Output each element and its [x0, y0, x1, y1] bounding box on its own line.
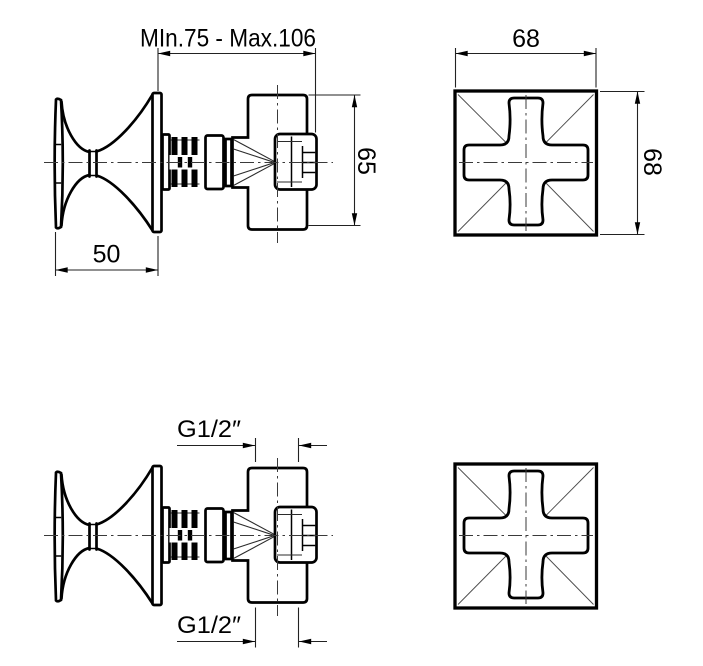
dim-body-height-text: 65: [352, 147, 380, 175]
dim-depth-range-text: MIn.75 - Max.106: [140, 25, 316, 53]
dim-plate-height-text: 68: [638, 148, 666, 176]
label-thread-bottom-text: G1/2″: [177, 612, 242, 639]
technical-drawing-svg: MIn.75 - Max.106 65 50 68 68 G1/2″ G: [0, 0, 703, 666]
dim-plate-width-text: 68: [512, 25, 540, 53]
front-view-top: [455, 91, 597, 235]
front-view-bottom: [455, 464, 597, 608]
side-view-top: [44, 85, 333, 243]
label-thread-top-text: G1/2″: [177, 416, 242, 443]
dim-knob-width-text: 50: [93, 241, 121, 269]
label-thread-top: G1/2″: [177, 416, 327, 462]
side-view-bottom: [44, 458, 333, 616]
label-thread-bottom: G1/2″: [177, 608, 327, 648]
dim-knob-width: 50: [56, 232, 159, 276]
dim-plate-width: 68: [456, 25, 597, 88]
technical-drawing: MIn.75 - Max.106 65 50 68 68 G1/2″ G: [0, 0, 703, 666]
dim-plate-height: 68: [600, 92, 666, 235]
dim-body-height: 65: [309, 95, 381, 226]
